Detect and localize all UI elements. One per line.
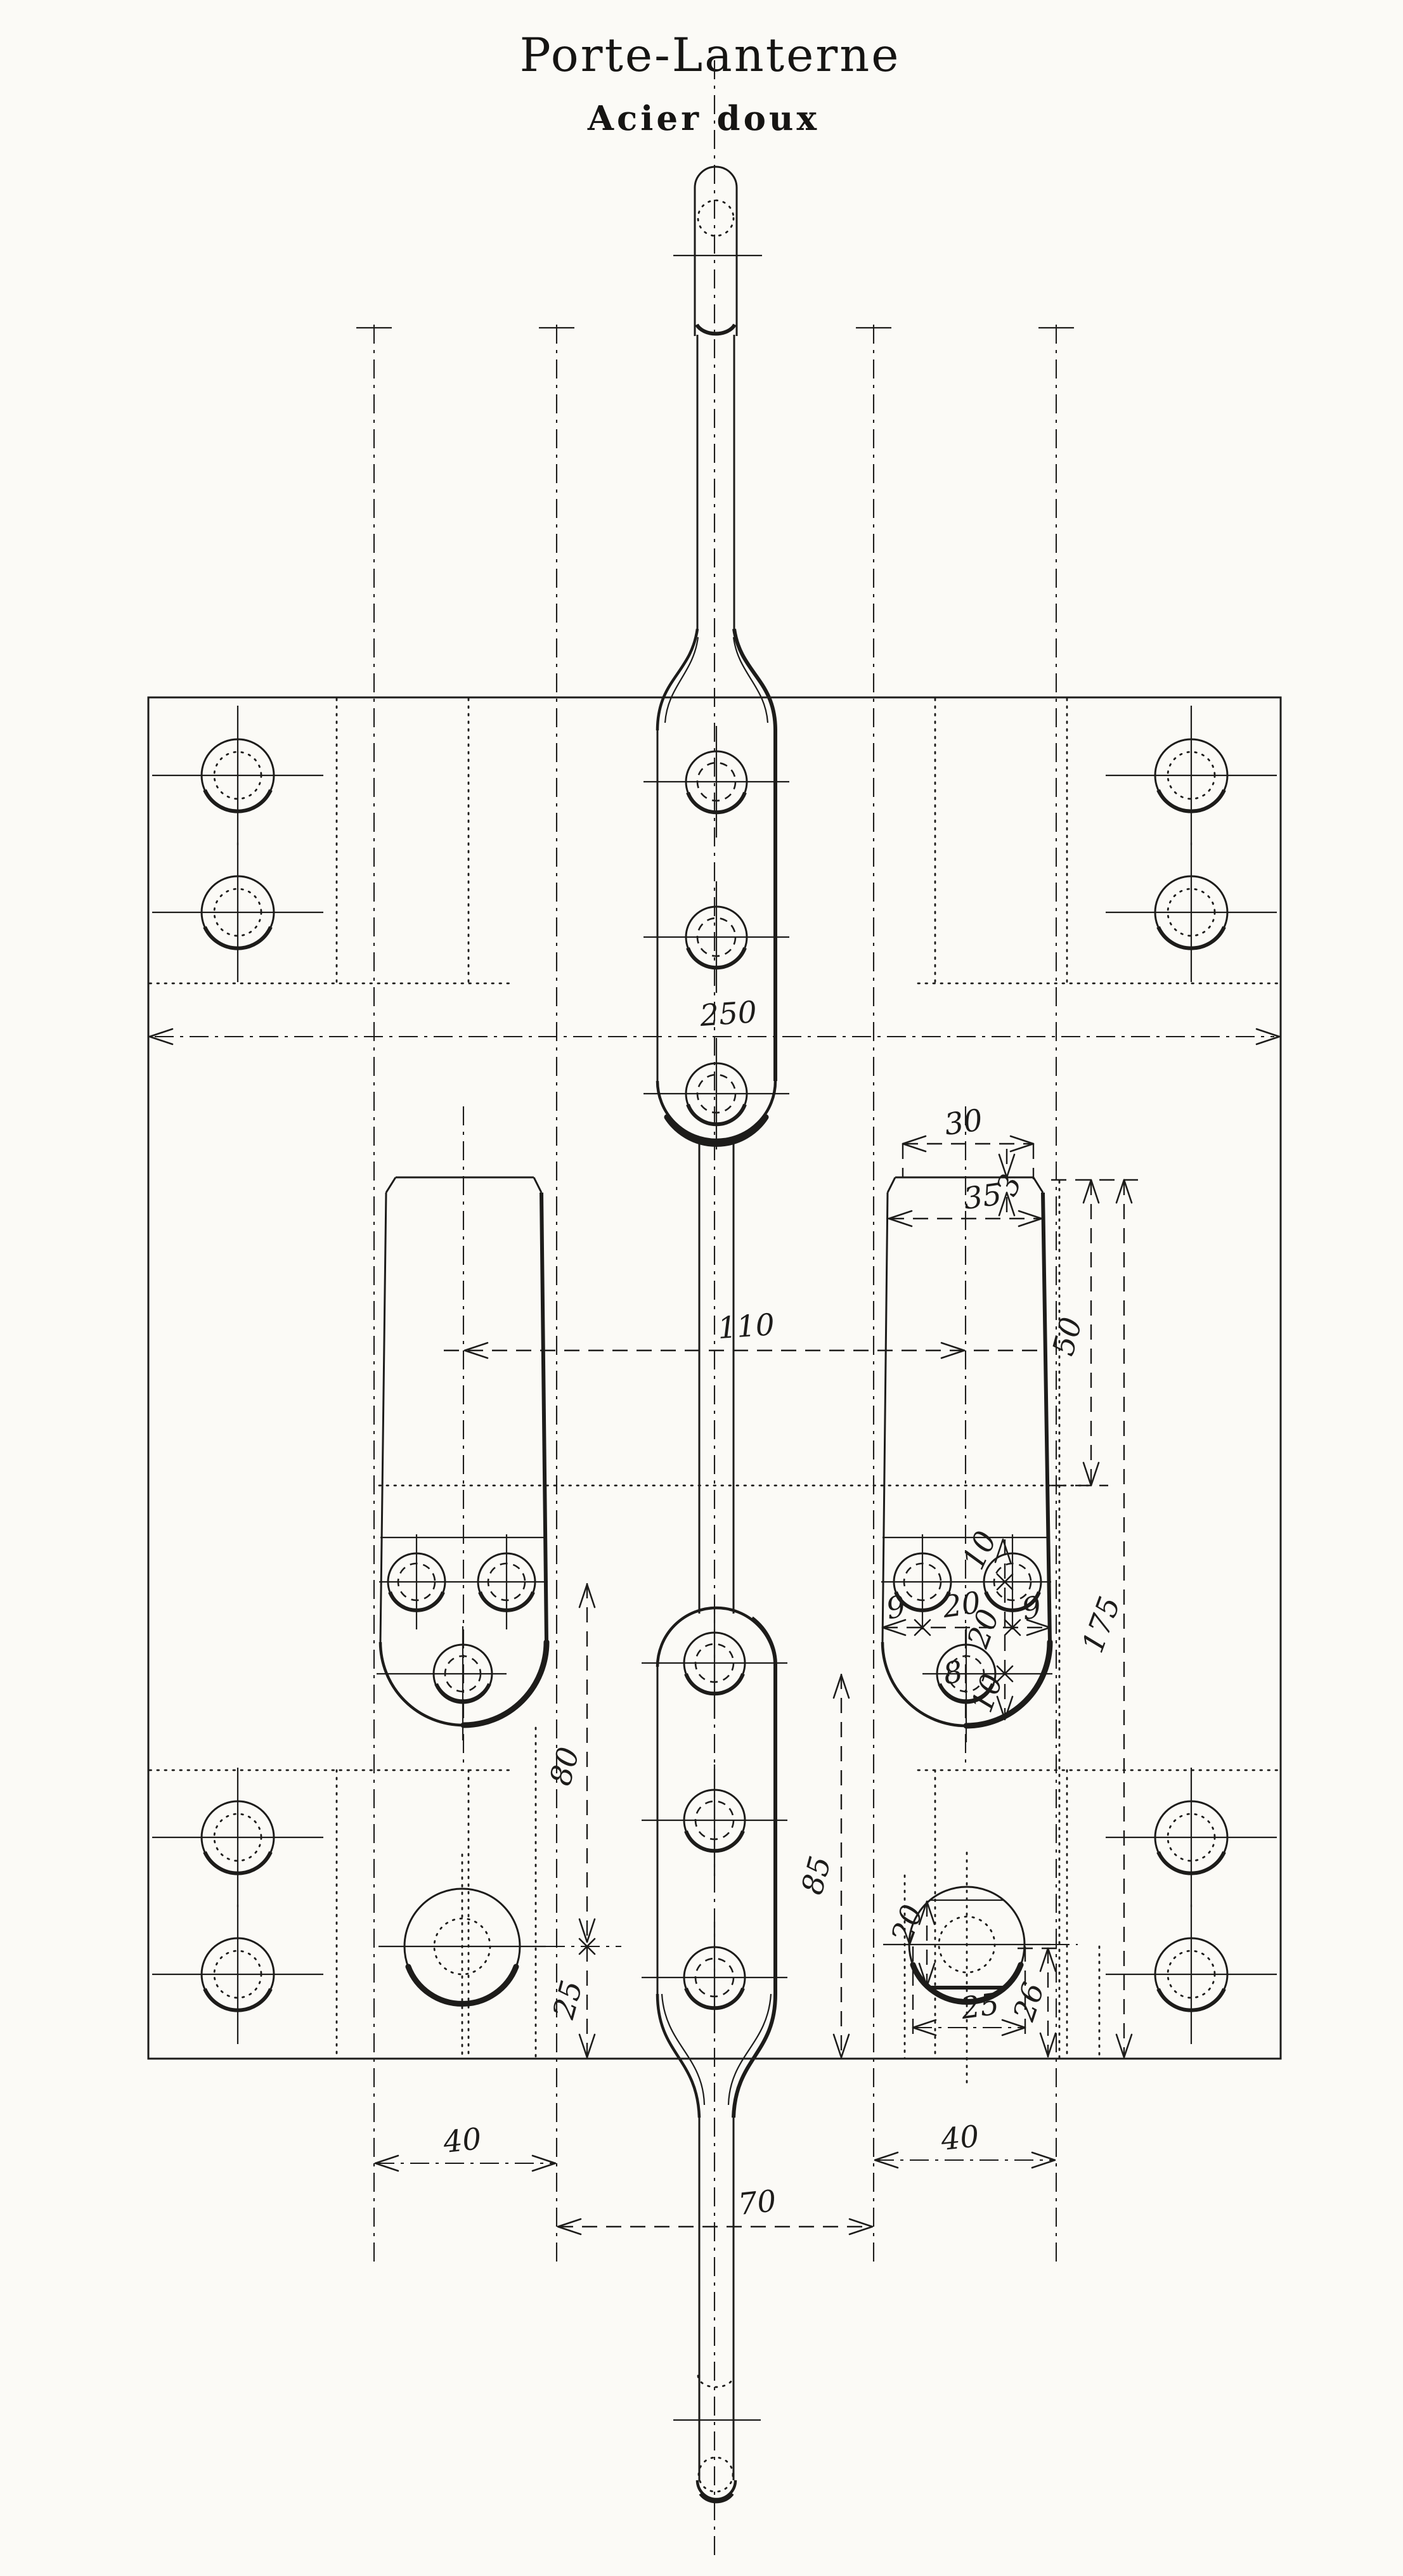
dim-small-hole-dia: 8 (941, 1654, 966, 1692)
lower-link-hole-1 (642, 1607, 787, 1719)
blueprint-page: Porte-Lanterne Acier doux (0, 0, 1403, 2576)
lower-link-hole-2 (642, 1764, 787, 1876)
bolt-top-right-1 (1106, 706, 1277, 845)
center-shaft-middle (699, 1139, 734, 1614)
dim-center-span: 70 (737, 2184, 778, 2222)
lower-link-hole-3 (642, 1922, 787, 2033)
dim-slot-width-right: 40 (939, 2119, 981, 2158)
dim-hole-to-plate-bottom: 85 (795, 1853, 839, 1898)
bolt-bottom-right-2 (1106, 1905, 1277, 2044)
dim-boss-width: 25 (958, 1986, 1001, 2026)
bolt-top-left-1 (152, 706, 323, 845)
center-shaft-top (657, 167, 775, 730)
dim-lug-width: 35 (961, 1177, 1004, 1217)
page-subtitle: Acier doux (587, 99, 820, 138)
left-boss-circle (378, 1854, 621, 2054)
technical-drawing: Porte-Lanterne Acier doux (0, 0, 1403, 2576)
page-title: Porte-Lanterne (520, 29, 901, 82)
dim-edge-margin-right: 9 (1019, 1589, 1044, 1627)
upper-link-hole-1 (643, 726, 789, 838)
right-lug (881, 1177, 1052, 1742)
dim-socket-depth: 50 (1046, 1314, 1090, 1359)
dimension-labels: 250 110 30 3 35 50 175 10 9 20 9 20 8 10… (441, 995, 1128, 2222)
dim-lug-top-width: 30 (942, 1103, 985, 1142)
construction-lines (150, 60, 1279, 2561)
upper-link-hole-2 (643, 881, 789, 993)
dim-neck-to-hole: 10 (956, 1526, 1004, 1575)
upper-link-hole-3 (643, 1038, 789, 1149)
left-lug (377, 1177, 548, 1740)
dim-lug-spacing: 110 (716, 1307, 775, 1346)
dim-slot-width-left: 40 (441, 2121, 483, 2160)
dim-boss-to-bottom-left: 25 (546, 1977, 590, 2023)
upper-link (643, 726, 789, 1149)
dim-lug-height: 175 (1075, 1592, 1127, 1657)
bolt-bottom-left-2 (152, 1905, 323, 2044)
bolt-top-left-2 (152, 843, 323, 982)
bolt-top-right-2 (1106, 843, 1277, 982)
dim-hole-to-boss-center: 80 (543, 1744, 587, 1789)
center-shaft-bottom (673, 2116, 761, 2501)
dim-boss-to-bottom-right: 26 (1007, 1978, 1052, 2026)
bolt-bottom-left-1 (152, 1768, 323, 1907)
dim-hole-to-lug-end: 10 (964, 1669, 1010, 1717)
dim-overall-width: 250 (698, 995, 758, 1033)
bolt-bottom-right-1 (1106, 1768, 1277, 1907)
dim-edge-margin-left: 9 (884, 1589, 908, 1626)
